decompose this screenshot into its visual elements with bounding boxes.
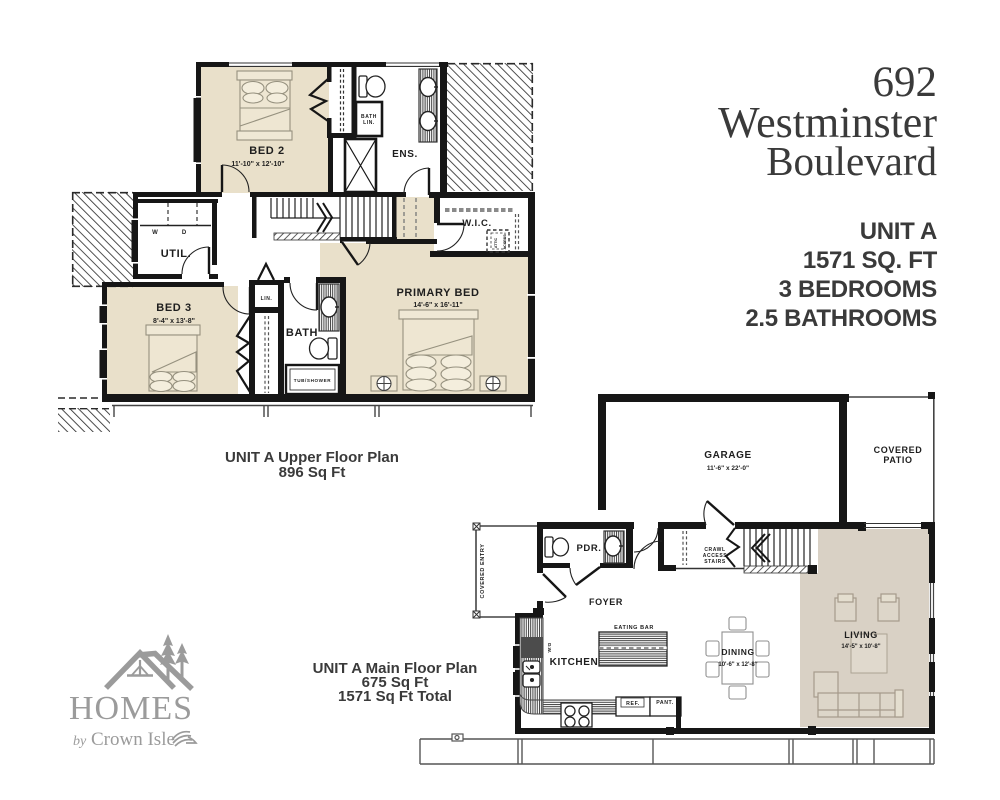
svg-text:BATH: BATH <box>286 327 318 339</box>
svg-text:1571 SQ. FT: 1571 SQ. FT <box>803 247 938 274</box>
svg-text:STAIRS: STAIRS <box>704 559 726 565</box>
svg-text:ACCESS: ACCESS <box>503 234 507 250</box>
svg-text:by: by <box>73 734 87 749</box>
svg-text:LIVING: LIVING <box>844 630 878 640</box>
svg-text:PDR.: PDR. <box>576 543 601 554</box>
svg-text:14'-6" x 16'-11": 14'-6" x 16'-11" <box>413 302 462 309</box>
svg-text:COVERED: COVERED <box>874 445 923 455</box>
svg-text:PATIO: PATIO <box>883 455 912 465</box>
svg-text:KITCHEN: KITCHEN <box>550 657 599 668</box>
svg-text:BED 2: BED 2 <box>249 145 284 157</box>
svg-text:11'-10" x 12'-10": 11'-10" x 12'-10" <box>231 161 284 168</box>
svg-text:TUB/SHOWER: TUB/SHOWER <box>294 378 331 383</box>
svg-text:3 BEDROOMS: 3 BEDROOMS <box>779 276 938 303</box>
svg-text:W.I.C.: W.I.C. <box>462 218 491 229</box>
svg-text:ATTIC: ATTIC <box>494 237 498 248</box>
svg-text:1571 Sq Ft Total: 1571 Sq Ft Total <box>338 688 452 705</box>
svg-text:COVERED ENTRY: COVERED ENTRY <box>480 544 486 599</box>
svg-text:14'-5" x 10'-8": 14'-5" x 10'-8" <box>841 644 880 650</box>
svg-text:HOMES: HOMES <box>69 690 193 727</box>
svg-text:LIN.: LIN. <box>261 296 273 302</box>
svg-text:BED 3: BED 3 <box>156 302 191 314</box>
svg-text:D.W.: D.W. <box>547 643 552 653</box>
svg-text:PANT.: PANT. <box>656 700 674 706</box>
svg-text:PRIMARY BED: PRIMARY BED <box>397 287 480 299</box>
svg-text:D: D <box>182 230 187 236</box>
svg-text:Boulevard: Boulevard <box>766 138 937 184</box>
svg-text:896 Sq Ft: 896 Sq Ft <box>279 464 346 481</box>
svg-text:EATING BAR: EATING BAR <box>614 625 654 631</box>
svg-text:LIN.: LIN. <box>363 120 375 126</box>
svg-text:8'-4" x 13'-8": 8'-4" x 13'-8" <box>153 318 195 325</box>
svg-text:REF.: REF. <box>626 701 640 707</box>
svg-text:FOYER: FOYER <box>589 597 623 607</box>
svg-text:10'-6" x 12'-8": 10'-6" x 12'-8" <box>718 662 757 668</box>
svg-text:W: W <box>152 230 158 236</box>
svg-text:Crown Isle: Crown Isle <box>91 729 175 750</box>
svg-text:UNIT A: UNIT A <box>860 218 937 245</box>
svg-text:ENS.: ENS. <box>392 149 418 160</box>
svg-text:2.5 BATHROOMS: 2.5 BATHROOMS <box>745 305 937 332</box>
svg-text:11'-6" x 22'-0": 11'-6" x 22'-0" <box>707 465 749 472</box>
svg-text:GARAGE: GARAGE <box>704 450 752 461</box>
svg-text:DINING: DINING <box>721 647 754 657</box>
